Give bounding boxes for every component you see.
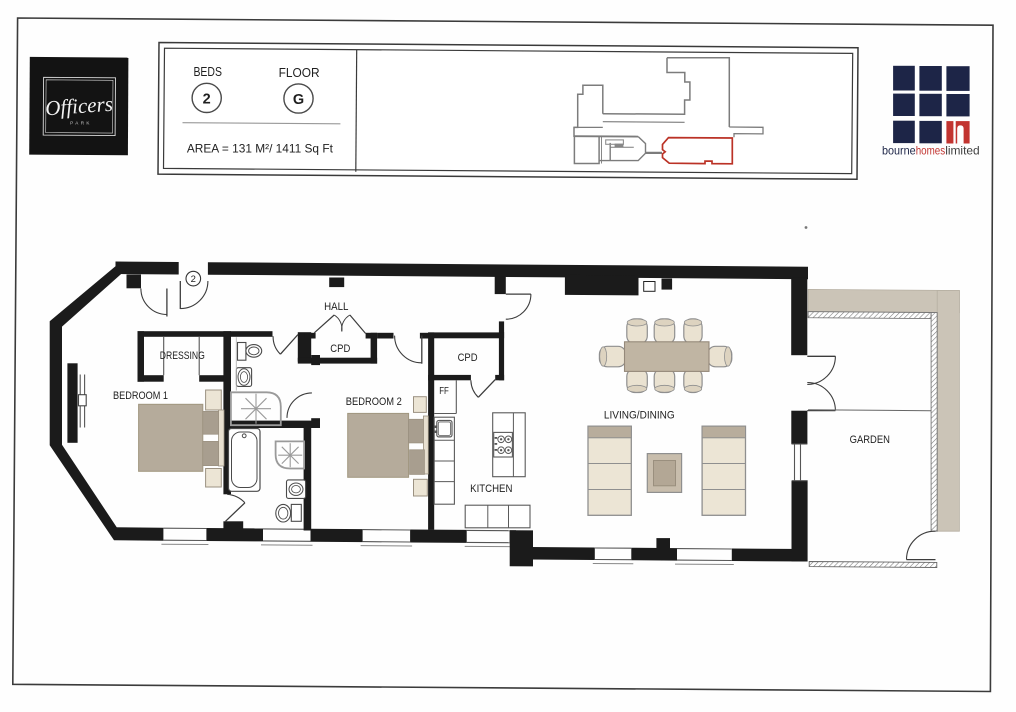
svg-text:AREA = 131 M²/ 1411 Sq Ft: AREA = 131 M²/ 1411 Sq Ft — [187, 142, 334, 156]
svg-text:LIVING/DINING: LIVING/DINING — [604, 410, 675, 422]
svg-text:GARDEN: GARDEN — [850, 434, 890, 446]
svg-text:bourne: bourne — [882, 144, 916, 158]
svg-text:2: 2 — [191, 274, 196, 285]
svg-text:CPD: CPD — [458, 352, 478, 364]
svg-text:2: 2 — [203, 91, 211, 107]
svg-text:BEDROOM 1: BEDROOM 1 — [113, 390, 168, 402]
svg-text:homes: homes — [916, 144, 946, 158]
svg-text:BEDS: BEDS — [193, 64, 222, 79]
svg-text:limited: limited — [945, 144, 980, 158]
svg-text:HALL: HALL — [324, 301, 348, 313]
svg-text:G: G — [293, 92, 304, 108]
svg-text:KITCHEN: KITCHEN — [470, 483, 512, 495]
svg-text:BEDROOM 2: BEDROOM 2 — [346, 396, 402, 408]
svg-text:CPD: CPD — [330, 343, 350, 355]
svg-text:Officers: Officers — [44, 92, 113, 121]
svg-text:FLOOR: FLOOR — [279, 65, 320, 80]
svg-text:FF: FF — [439, 385, 449, 397]
svg-text:DRESSING: DRESSING — [160, 350, 205, 362]
svg-text:PARK: PARK — [70, 121, 92, 126]
